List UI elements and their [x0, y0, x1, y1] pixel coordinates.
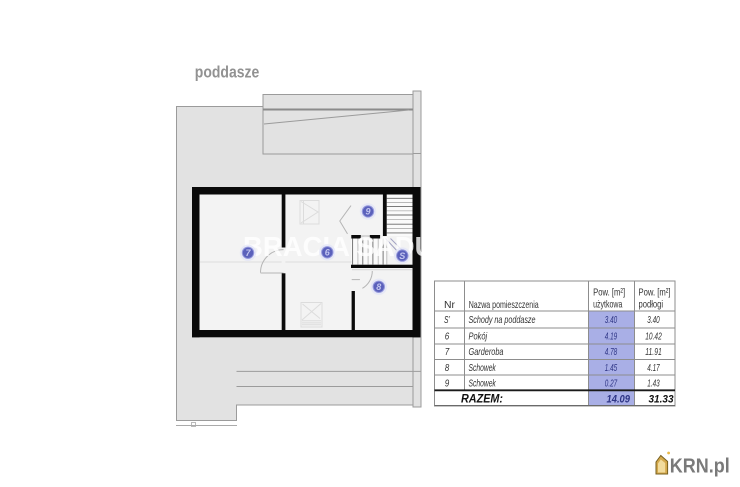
svg-text:8: 8 — [445, 362, 450, 374]
svg-text:Pow. [m²]: Pow. [m²] — [593, 287, 625, 299]
svg-text:10.42: 10.42 — [645, 331, 662, 343]
svg-text:RAZEM:: RAZEM: — [461, 392, 503, 406]
svg-text:8: 8 — [376, 282, 381, 292]
svg-text:Nr: Nr — [444, 299, 455, 311]
svg-text:Nazwa pomieszczenia: Nazwa pomieszczenia — [469, 299, 539, 311]
svg-text:1.45: 1.45 — [605, 362, 617, 374]
svg-text:Pow. [m²]: Pow. [m²] — [639, 287, 671, 299]
svg-text:9: 9 — [445, 377, 450, 389]
svg-text:Schowek: Schowek — [469, 362, 497, 374]
svg-text:S: S — [399, 251, 405, 261]
svg-text:9: 9 — [365, 207, 370, 217]
svg-text:3.40: 3.40 — [647, 314, 659, 326]
svg-text:BRACIA SADURSCY: BRACIA SADURSCY — [243, 231, 511, 262]
svg-text:KRN.pl: KRN.pl — [670, 456, 730, 478]
svg-text:7: 7 — [445, 346, 450, 358]
svg-text:3.40: 3.40 — [605, 314, 617, 326]
svg-text:6: 6 — [445, 331, 450, 343]
svg-text:11.91: 11.91 — [645, 346, 662, 358]
svg-text:Garderoba: Garderoba — [469, 346, 504, 358]
svg-text:Pokój: Pokój — [469, 331, 488, 343]
svg-text:4.19: 4.19 — [605, 331, 617, 343]
svg-text:Schowek: Schowek — [469, 377, 497, 389]
svg-text:31.33: 31.33 — [649, 394, 674, 406]
svg-text:podłogi: podłogi — [639, 299, 664, 311]
svg-text:użytkowa: użytkowa — [593, 299, 622, 311]
svg-text:0.27: 0.27 — [605, 377, 618, 389]
svg-text:poddasze: poddasze — [195, 64, 259, 82]
svg-text:14.09: 14.09 — [607, 394, 631, 406]
svg-text:S’: S’ — [444, 314, 450, 326]
svg-text:Schody na poddasze: Schody na poddasze — [469, 314, 536, 326]
svg-text:1.43: 1.43 — [647, 377, 659, 389]
svg-text:4.17: 4.17 — [647, 362, 660, 374]
svg-text:4.78: 4.78 — [605, 346, 617, 358]
